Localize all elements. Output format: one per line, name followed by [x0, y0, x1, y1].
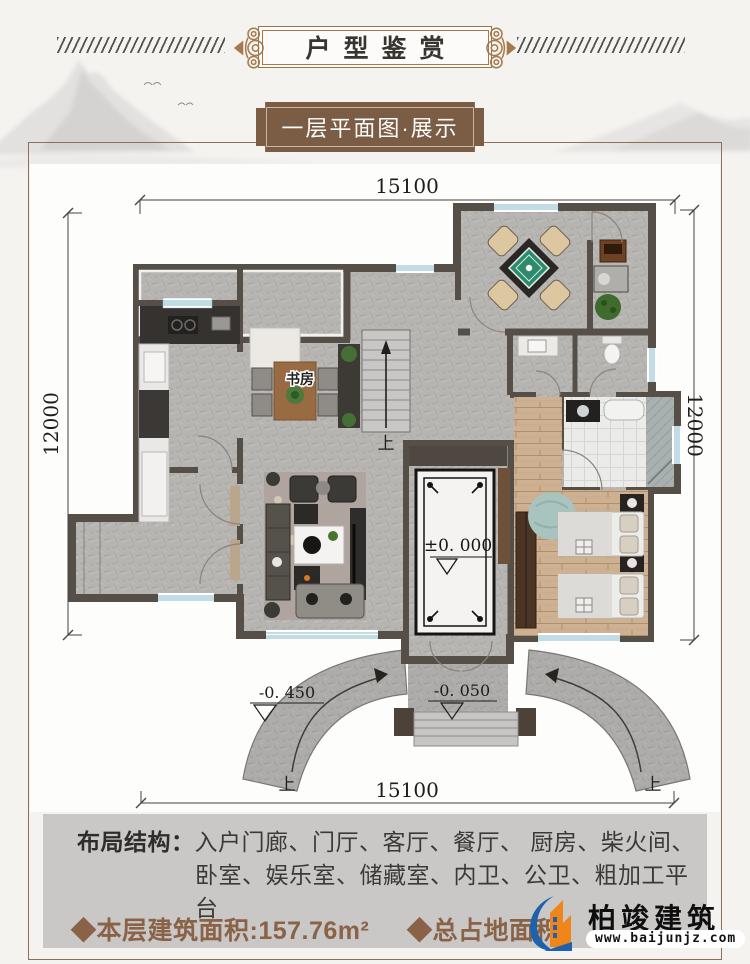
dim-top: 15100	[375, 174, 439, 198]
plant	[595, 294, 621, 320]
window	[163, 298, 212, 308]
bed-1	[558, 512, 644, 556]
brand-logo: 柏竣建筑 www.baijunjz.com	[524, 893, 750, 957]
ensuite-bathroom	[564, 397, 674, 487]
layout-items-1: 入户门廊、门厅、客厅、餐厅、 厨房、柴火间、	[195, 829, 695, 855]
floorplan-poster: { "header": { "title": "户型鉴赏" }, "banner…	[0, 0, 750, 964]
entry-steps	[414, 712, 518, 746]
study-label: 书房	[286, 371, 314, 387]
dim-right: 12000	[683, 393, 707, 457]
level-zero-label: ±0. 000	[424, 536, 492, 556]
sink	[144, 352, 165, 382]
shower-area	[646, 397, 674, 487]
layout-heading: 布局结构：	[77, 829, 195, 855]
armchair	[290, 476, 318, 502]
ramp-up-right-label: 上	[645, 775, 662, 795]
sofa-bottom	[296, 584, 364, 618]
bathtub	[604, 400, 644, 420]
floor-area-stat: ◆本层建筑面积:157.76m²	[71, 917, 369, 945]
brand-website[interactable]: www.baijunjz.com	[586, 930, 745, 948]
bed-2	[558, 574, 644, 618]
entrance-porch: ±0. 000	[409, 446, 510, 634]
entry-level-label: -0. 050	[434, 681, 490, 700]
fridge	[142, 452, 167, 516]
living-room	[264, 472, 366, 620]
dim-left: 12000	[39, 392, 63, 456]
dim-bottom: 15100	[375, 778, 439, 802]
brand-logo-icon	[524, 893, 586, 953]
layout-line-1: 布局结构：入户门廊、门厅、客厅、餐厅、 厨房、柴火间、	[77, 826, 707, 859]
area-stats: ◆本层建筑面积:157.76m² ◆总占地面积	[71, 911, 369, 947]
section-banner: 一层平面图·展示	[256, 102, 484, 152]
toilet	[604, 344, 620, 364]
ramp-level-label: -0. 450	[259, 683, 315, 702]
section-banner-label: 一层平面图·展示	[281, 111, 458, 143]
stairs-up-label: 上	[378, 434, 395, 454]
ramp-up-left-label: 上	[279, 775, 296, 795]
